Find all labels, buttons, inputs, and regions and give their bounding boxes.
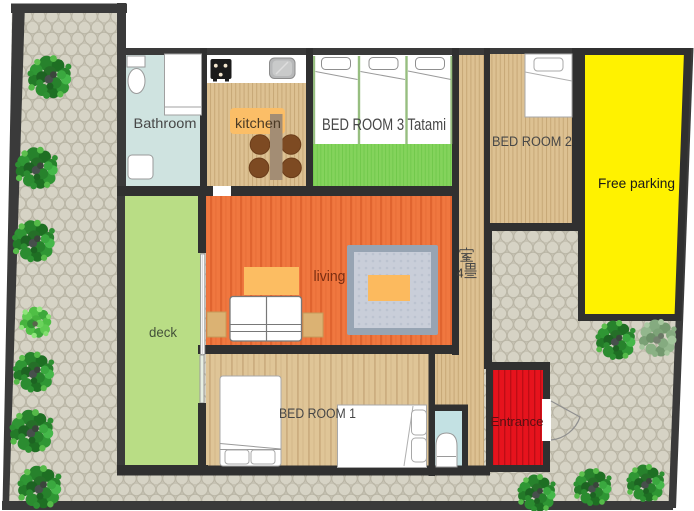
svg-text:kitchen: kitchen (235, 115, 281, 131)
svg-text:BED ROOM 3 Tatami: BED ROOM 3 Tatami (322, 116, 446, 134)
svg-text:BED ROOM 2: BED ROOM 2 (492, 134, 572, 149)
svg-text:BED ROOM 1: BED ROOM 1 (279, 406, 356, 421)
svg-text:Bathroom: Bathroom (134, 115, 197, 131)
svg-text:4: 4 (457, 267, 464, 281)
svg-text:living: living (314, 268, 346, 285)
svg-text:Entrance: Entrance (491, 415, 544, 429)
svg-text:Free parking: Free parking (598, 175, 675, 191)
svg-text:deck: deck (149, 324, 178, 340)
